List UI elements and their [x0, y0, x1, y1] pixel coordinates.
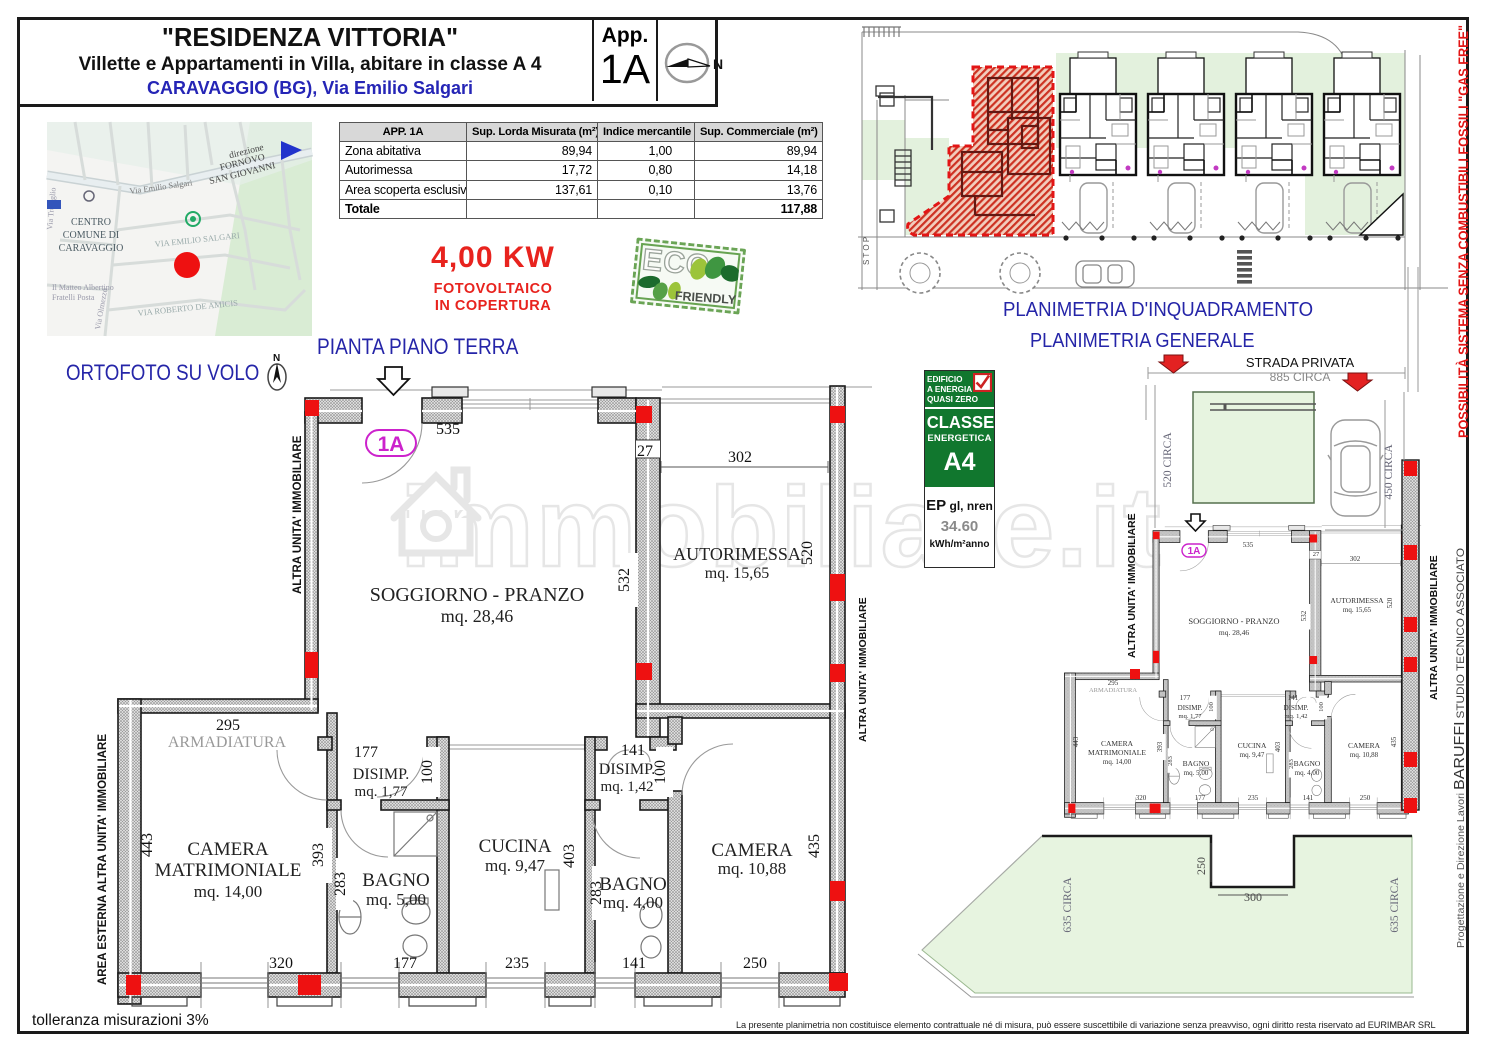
- svg-text:1A: 1A: [1188, 546, 1201, 557]
- svg-text:320: 320: [269, 955, 293, 972]
- svg-text:283: 283: [588, 881, 605, 905]
- svg-text:DISIMP.: DISIMP.: [1178, 704, 1203, 712]
- svg-text:393: 393: [310, 843, 327, 867]
- svg-text:443: 443: [139, 833, 156, 857]
- svg-text:520 CIRCA: 520 CIRCA: [1162, 432, 1174, 488]
- svg-text:mq. 1,77: mq. 1,77: [355, 784, 408, 800]
- svg-text:CUCINA: CUCINA: [479, 836, 552, 857]
- svg-text:295: 295: [216, 717, 240, 734]
- svg-text:AUTORIMESSA: AUTORIMESSA: [673, 544, 801, 564]
- svg-text:141: 141: [621, 742, 645, 759]
- svg-text:283: 283: [1288, 759, 1295, 769]
- svg-text:177: 177: [393, 955, 417, 972]
- svg-text:CENTRO: CENTRO: [71, 217, 111, 228]
- svg-text:COMUNE DI: COMUNE DI: [63, 230, 119, 241]
- svg-text:CARAVAGGIO: CARAVAGGIO: [59, 243, 124, 254]
- svg-text:27: 27: [637, 443, 653, 460]
- svg-text:SOGGIORNO - PRANZO: SOGGIORNO - PRANZO: [370, 584, 584, 606]
- svg-text:ARMADIATURA: ARMADIATURA: [1089, 687, 1137, 694]
- svg-text:250: 250: [1360, 794, 1371, 802]
- svg-text:177: 177: [1195, 794, 1206, 802]
- svg-text:ALTRA UNITA' IMMOBILIARE: ALTRA UNITA' IMMOBILIARE: [1428, 555, 1440, 700]
- svg-text:BAGNO: BAGNO: [1294, 759, 1321, 768]
- svg-text:DISIMP.: DISIMP.: [353, 766, 409, 783]
- svg-text:885 CIRCA: 885 CIRCA: [1270, 370, 1331, 384]
- svg-text:283: 283: [1167, 756, 1174, 766]
- svg-text:300: 300: [1244, 890, 1262, 904]
- svg-text:mq. 9,47: mq. 9,47: [1240, 751, 1265, 759]
- svg-text:450 CIRCA: 450 CIRCA: [1383, 444, 1395, 500]
- svg-text:177: 177: [1180, 694, 1191, 702]
- svg-text:141: 141: [622, 955, 646, 972]
- svg-text:S T O P: S T O P: [862, 237, 871, 265]
- svg-text:mq. 4,00: mq. 4,00: [1295, 769, 1320, 777]
- svg-text:435: 435: [806, 834, 823, 858]
- svg-text:BAGNO: BAGNO: [1183, 759, 1210, 768]
- svg-text:235: 235: [1248, 794, 1259, 802]
- svg-text:mq. 10,88: mq. 10,88: [718, 859, 786, 878]
- svg-text:295: 295: [1108, 679, 1119, 687]
- svg-text:100: 100: [1208, 702, 1215, 712]
- svg-text:320: 320: [1136, 794, 1147, 802]
- svg-text:Fratelli Posta: Fratelli Posta: [52, 293, 95, 302]
- svg-text:mq. 1,42: mq. 1,42: [1285, 713, 1308, 720]
- svg-text:mq. 5,00: mq. 5,00: [366, 890, 426, 909]
- svg-text:532: 532: [616, 568, 633, 592]
- svg-text:mq. 14,00: mq. 14,00: [194, 882, 262, 901]
- svg-text:STRADA PRIVATA: STRADA PRIVATA: [1246, 355, 1355, 370]
- svg-text:302: 302: [728, 449, 752, 466]
- svg-text:1A: 1A: [378, 433, 405, 456]
- svg-text:AREA ESTERNA ALTRA UNITA' IMMO: AREA ESTERNA ALTRA UNITA' IMMOBILIARE: [97, 734, 109, 985]
- svg-text:AUTORIMESSA: AUTORIMESSA: [1330, 596, 1384, 605]
- svg-text:mq. 10,88: mq. 10,88: [1350, 751, 1379, 759]
- svg-text:MATRIMONIALE: MATRIMONIALE: [1088, 748, 1146, 757]
- svg-text:302: 302: [1350, 555, 1361, 563]
- svg-text:100: 100: [1318, 702, 1325, 712]
- svg-text:532: 532: [1300, 610, 1308, 621]
- svg-text:ALTRA UNITA' IMMOBILIARE: ALTRA UNITA' IMMOBILIARE: [1126, 513, 1138, 658]
- svg-text:CAMERA: CAMERA: [711, 840, 793, 861]
- svg-text:250: 250: [743, 955, 767, 972]
- svg-text:mq. 5,00: mq. 5,00: [1184, 769, 1209, 777]
- svg-text:141: 141: [1303, 794, 1314, 802]
- svg-text:250: 250: [1194, 857, 1208, 875]
- svg-text:100: 100: [652, 760, 669, 784]
- svg-text:mq. 1,42: mq. 1,42: [601, 779, 654, 795]
- svg-text:mq. 28,46: mq. 28,46: [1219, 628, 1249, 637]
- svg-text:100: 100: [419, 760, 436, 784]
- svg-text:CUCINA: CUCINA: [1238, 741, 1267, 750]
- svg-text:mq. 15,65: mq. 15,65: [1343, 606, 1372, 614]
- svg-text:141: 141: [1288, 694, 1299, 702]
- svg-text:mq. 15,65: mq. 15,65: [705, 565, 769, 582]
- svg-text:403: 403: [561, 844, 578, 868]
- svg-text:Progettazione e Direzione Lavo: Progettazione e Direzione Lavori BARUFFI…: [1451, 548, 1468, 948]
- svg-text:BAGNO: BAGNO: [599, 874, 667, 895]
- svg-text:SOGGIORNO - PRANZO: SOGGIORNO - PRANZO: [1188, 616, 1279, 626]
- svg-text:393: 393: [1156, 741, 1164, 752]
- svg-text:CAMERA: CAMERA: [1101, 739, 1134, 748]
- svg-text:535: 535: [1243, 541, 1254, 549]
- svg-text:235: 235: [505, 955, 529, 972]
- svg-text:DISIMP.: DISIMP.: [599, 761, 655, 778]
- svg-text:CAMERA: CAMERA: [187, 839, 269, 860]
- svg-text:ALTRA UNITA' IMMOBILIARE: ALTRA UNITA' IMMOBILIARE: [292, 435, 304, 594]
- svg-text:CAMERA: CAMERA: [1348, 741, 1381, 750]
- svg-text:403: 403: [1274, 741, 1282, 752]
- svg-text:535: 535: [436, 421, 460, 438]
- svg-text:177: 177: [354, 744, 378, 761]
- svg-text:DISIMP.: DISIMP.: [1284, 704, 1309, 712]
- svg-text:ALTRA UNITA' IMMOBILIARE: ALTRA UNITA' IMMOBILIARE: [857, 597, 869, 742]
- svg-text:443: 443: [1072, 736, 1080, 747]
- svg-text:MATRIMONIALE: MATRIMONIALE: [155, 860, 302, 881]
- svg-text:mq. 14,00: mq. 14,00: [1103, 758, 1132, 766]
- svg-text:520: 520: [799, 541, 816, 565]
- svg-text:435: 435: [1390, 736, 1398, 747]
- svg-text:635 CIRCA: 635 CIRCA: [1389, 877, 1401, 933]
- svg-text:635 CIRCA: 635 CIRCA: [1062, 877, 1074, 933]
- svg-text:mq. 28,46: mq. 28,46: [441, 606, 514, 626]
- svg-text:ARMADIATURA: ARMADIATURA: [168, 734, 287, 751]
- svg-text:mq. 1,77: mq. 1,77: [1179, 713, 1203, 720]
- svg-text:27: 27: [1313, 551, 1320, 558]
- svg-text:mq. 4,00: mq. 4,00: [603, 893, 663, 912]
- svg-text:520: 520: [1386, 597, 1394, 608]
- svg-text:BAGNO: BAGNO: [362, 870, 430, 891]
- svg-text:Il Matteo Albertino: Il Matteo Albertino: [52, 283, 114, 292]
- svg-text:mq. 9,47: mq. 9,47: [485, 856, 545, 875]
- svg-text:POSSIBILITÀ SISTEMA SENZA COMB: POSSIBILITÀ SISTEMA SENZA COMBUSTIBILI F…: [1455, 25, 1471, 438]
- svg-text:283: 283: [332, 872, 349, 896]
